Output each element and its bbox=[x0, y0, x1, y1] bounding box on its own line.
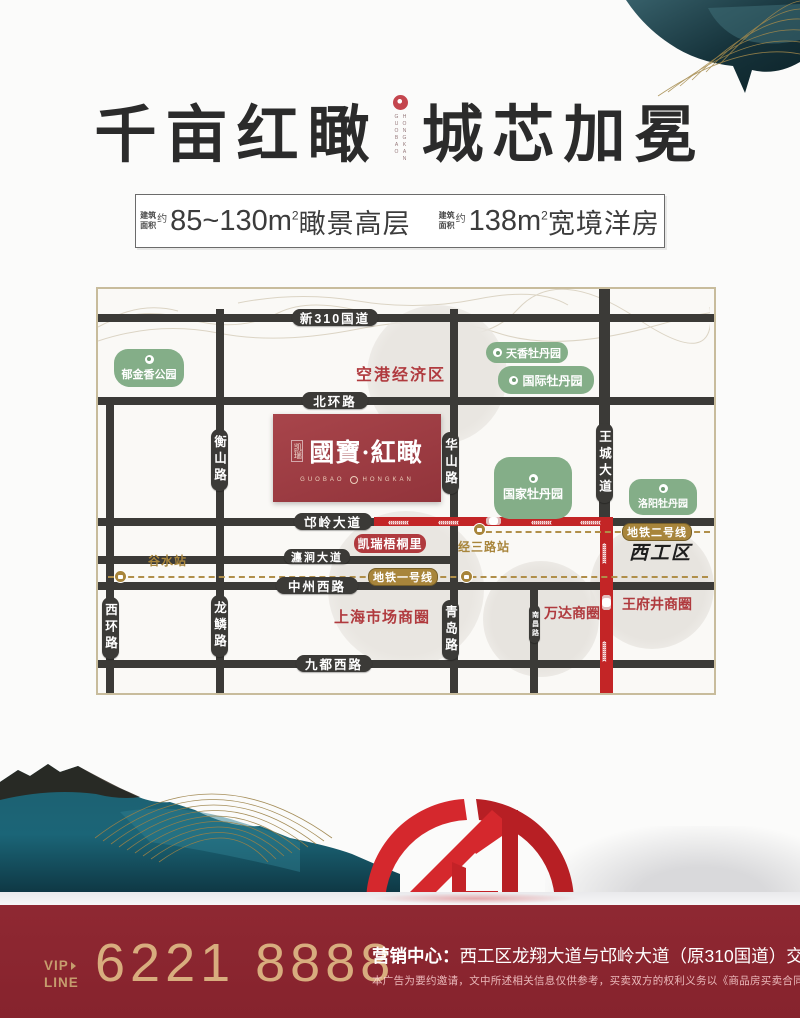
spec1-suffix: 瞰景高层 bbox=[299, 202, 411, 241]
poi-guojia-garden: 国家牡丹园 bbox=[494, 457, 572, 519]
district-xigongqu: 西工区 bbox=[629, 538, 692, 565]
red-arch-sculpture bbox=[352, 758, 598, 903]
spec-prefix-word1: 建筑 bbox=[439, 211, 455, 221]
metro-station-icon bbox=[460, 570, 473, 583]
spec-approx: 约 bbox=[157, 210, 167, 225]
car-icon bbox=[602, 595, 611, 610]
spec1-sup: 2 bbox=[292, 208, 299, 222]
project-prefix: 凯瑞 bbox=[291, 440, 303, 462]
poi-label: 天香牡丹园 bbox=[506, 345, 561, 361]
road-label-zhongzhou: 中州西路 bbox=[276, 577, 358, 594]
spec-flats: 建筑 面积 约 138m2 宽境洋房 bbox=[439, 202, 660, 241]
spec-prefix-word2: 面积 bbox=[439, 221, 455, 231]
area-spec-box: 建筑 面积 约 85~130m2 瞰景高层 建筑 面积 约 138m2 宽境洋房 bbox=[135, 194, 665, 248]
seal-icon bbox=[350, 476, 358, 484]
location-pin-icon bbox=[659, 484, 668, 493]
location-pin-icon bbox=[493, 348, 502, 357]
spec2-value: 138m bbox=[469, 205, 542, 237]
project-latin-right: HONGKAN bbox=[363, 477, 414, 483]
office-label: 营销中心： bbox=[372, 946, 460, 966]
brand-logo: GUOBAO HONGKAN bbox=[393, 95, 408, 163]
road-jiudu bbox=[98, 660, 714, 668]
road-label-jiudu: 九都西路 bbox=[296, 655, 372, 672]
ink-mountain-art bbox=[0, 742, 400, 905]
area-wutongli: 凯瑞梧桐里 bbox=[354, 534, 426, 553]
road-g310 bbox=[98, 314, 714, 322]
disclaimer-text: 本广告为要约邀请，文中所述相关信息仅供参考，买卖双方的权利义务以《商品房买卖合同… bbox=[372, 973, 800, 988]
project-block: 凯瑞 國寶·紅瞰 GUOBAO HONGKAN bbox=[273, 414, 441, 502]
poi-label: 洛阳牡丹园 bbox=[638, 495, 688, 510]
vip-word: VIP bbox=[44, 958, 69, 975]
road-label-huashan: 华山路 bbox=[442, 432, 459, 494]
poi-tianxiang-garden: 天香牡丹园 bbox=[486, 342, 568, 363]
poi-yujinxiang-park: 郁金香公园 bbox=[114, 349, 184, 387]
chevron-left-icon bbox=[531, 518, 551, 526]
area-konggang: 空港经济区 bbox=[356, 361, 446, 385]
road-label-nanchang: 南昌路 bbox=[529, 605, 540, 643]
metro-line1-label: 地铁一号线 bbox=[368, 568, 438, 586]
road-label-wangcheng: 王城大道 bbox=[596, 423, 613, 503]
footer-bar: VIP LINE 6221 8888 营销中心：西工区龙翔大道与邙岭大道（原31… bbox=[0, 905, 800, 1018]
sculpture-reflection bbox=[370, 893, 580, 904]
chevron-up-icon bbox=[601, 641, 609, 661]
logo-latin-left: GUOBAO bbox=[394, 114, 399, 163]
metro-station-icon bbox=[114, 570, 127, 583]
area-shanghai: 上海市场商圈 bbox=[334, 606, 430, 627]
project-name: 國寶·紅瞰 bbox=[309, 433, 422, 469]
road-label-chanjian: 瀍涧大道 bbox=[284, 549, 350, 564]
spec-highrise: 建筑 面积 约 85~130m2 瞰景高层 bbox=[140, 202, 410, 241]
car-icon bbox=[486, 517, 501, 525]
title-left: 千亩红瞰 bbox=[94, 84, 378, 174]
chevron-left-icon bbox=[580, 518, 600, 526]
spec2-sup: 2 bbox=[541, 208, 548, 222]
title-right: 城芯加冕 bbox=[422, 84, 706, 174]
project-latin-left: GUOBAO bbox=[300, 477, 344, 483]
phone-number: 6221 8888 bbox=[95, 932, 395, 994]
chevron-up-icon bbox=[601, 543, 609, 563]
station-jingsan: 经三路站 bbox=[458, 538, 510, 555]
metro-station-icon bbox=[473, 523, 486, 536]
spec-prefix-word2: 面积 bbox=[140, 221, 156, 231]
road-label-g310: 新310国道 bbox=[292, 309, 378, 326]
chevron-left-icon bbox=[388, 518, 408, 526]
poi-luoyang-garden: 洛阳牡丹园 bbox=[629, 479, 697, 515]
line-word: LINE bbox=[44, 975, 79, 990]
poi-guoji-garden: 国际牡丹园 bbox=[498, 366, 594, 394]
vip-line-label: VIP LINE bbox=[44, 958, 79, 992]
metro-line2-label: 地铁二号线 bbox=[622, 523, 692, 541]
seal-icon bbox=[393, 95, 408, 110]
poi-label: 国家牡丹园 bbox=[503, 485, 563, 502]
location-pin-icon bbox=[145, 355, 154, 364]
road-label-beihuan: 北环路 bbox=[302, 392, 368, 409]
spec2-suffix: 宽境洋房 bbox=[548, 202, 660, 241]
spec-prefix-word1: 建筑 bbox=[140, 211, 156, 221]
road-label-hengshan: 衡山路 bbox=[211, 429, 228, 491]
chevron-left-icon bbox=[438, 518, 458, 526]
poi-label: 郁金香公园 bbox=[122, 366, 177, 382]
main-title: 千亩红瞰 GUOBAO HONGKAN 城芯加冕 bbox=[0, 84, 800, 174]
location-map: 谷水站 经三路站 地铁一号线 地铁二号线 新310国道 北环路 邙岭大道 瀍涧大… bbox=[96, 287, 716, 695]
poster: 千亩红瞰 GUOBAO HONGKAN 城芯加冕 建筑 面积 约 85~130m… bbox=[0, 0, 800, 1018]
road-beihuan bbox=[98, 397, 714, 405]
area-wanda: 万达商圈 bbox=[544, 603, 600, 623]
poi-label: 国际牡丹园 bbox=[522, 372, 582, 389]
logo-latin-right: HONGKAN bbox=[402, 114, 407, 163]
area-wangfujing: 王府井商圈 bbox=[622, 594, 692, 614]
spec-approx: 约 bbox=[456, 210, 466, 225]
spec1-value: 85~130m bbox=[170, 205, 292, 237]
location-pin-icon bbox=[529, 474, 538, 483]
office-address: 西工区龙翔大道与邙岭大道（原310国道）交会处 bbox=[460, 946, 800, 966]
road-label-mangling: 邙岭大道 bbox=[294, 513, 372, 530]
location-pin-icon bbox=[509, 376, 518, 385]
road-label-qingdao: 青岛路 bbox=[442, 600, 459, 660]
vip-arrow-icon bbox=[71, 962, 76, 970]
road-label-longlin: 龙鳞路 bbox=[211, 595, 228, 657]
station-gushui: 谷水站 bbox=[148, 552, 187, 569]
road-label-xihuan: 西环路 bbox=[102, 597, 119, 659]
